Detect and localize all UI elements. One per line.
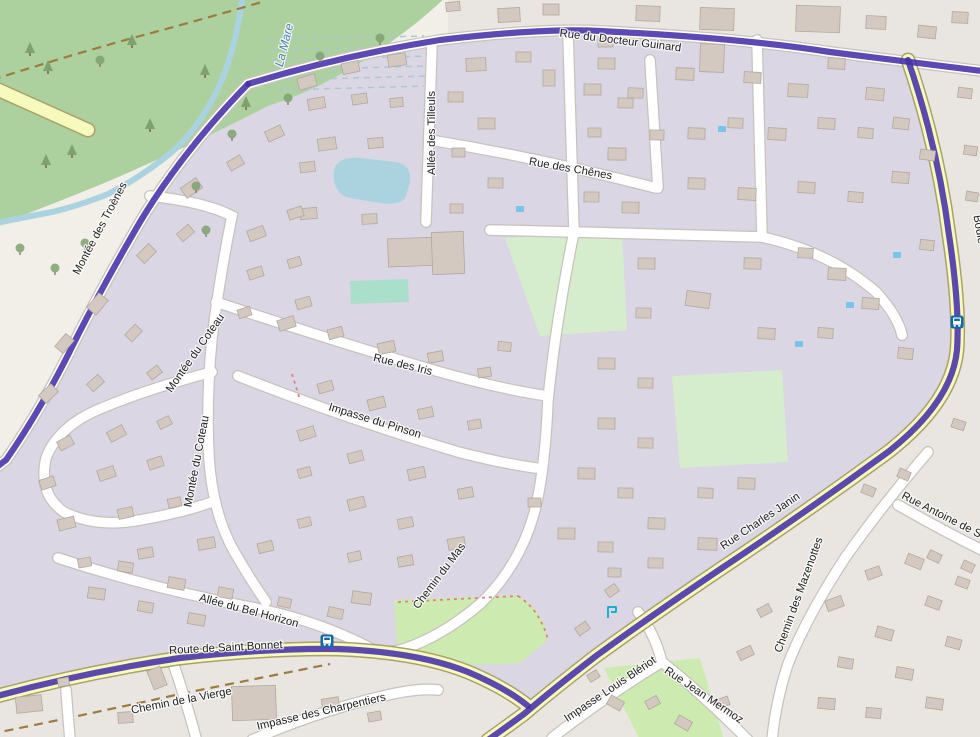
building [963,145,977,156]
building [446,1,461,11]
building [837,657,854,669]
building [862,297,880,309]
building [307,97,326,111]
building [367,711,381,722]
building [818,118,836,130]
building [608,148,626,160]
pool [893,252,901,258]
building [650,130,664,140]
building [648,518,665,530]
building [117,561,133,573]
building [920,239,935,250]
bus-stop-icon[interactable] [321,635,334,648]
street-label: Allée des Tilleuls [426,91,438,175]
building [57,677,69,687]
building [466,57,487,71]
building [478,118,495,129]
building [368,137,384,148]
building [952,12,969,24]
building [866,707,882,718]
building [543,70,555,86]
building [467,419,481,430]
building [197,537,216,551]
street-757 [757,40,762,237]
building [818,327,834,338]
building [895,667,914,681]
bus-stop-icon[interactable] [951,316,964,329]
building [397,555,414,567]
building [818,697,836,709]
building [362,214,378,225]
pool [846,302,854,308]
building [622,202,639,213]
building [457,487,474,499]
building [685,290,711,308]
building [598,542,613,552]
building [744,72,762,84]
building [317,137,336,151]
building [700,7,735,30]
stub-sw1 [66,690,70,737]
building [788,83,809,97]
building [688,128,705,140]
building [231,685,276,721]
building [427,351,444,363]
building [584,84,601,95]
building [351,591,371,606]
building [728,118,743,129]
building [588,128,601,137]
building [77,557,91,568]
building [897,347,913,360]
building [828,268,847,281]
building [636,6,661,22]
building [15,695,43,714]
building [543,4,559,15]
building [892,171,910,183]
map-canvas[interactable]: Rue du Docteur GuinardMontée des Troènes… [0,0,980,737]
building [351,93,367,105]
building [796,5,841,33]
building [758,328,776,340]
building [477,367,491,378]
building [638,378,653,388]
building [558,528,575,539]
building [137,601,154,613]
building [919,149,935,161]
building [688,178,705,190]
building [738,478,755,490]
building [598,418,615,429]
building [698,488,713,499]
building [584,192,599,202]
building [578,468,595,479]
building [866,87,885,101]
building [917,25,936,39]
building [892,117,909,130]
building [848,191,864,202]
building [798,248,814,259]
building [768,128,787,141]
building [452,148,465,157]
building [167,577,186,591]
pool [795,341,803,347]
building [676,68,694,81]
building [448,92,463,102]
building [965,191,978,202]
building [618,488,633,498]
building [528,498,541,507]
green-b-area [672,370,788,468]
building [608,568,621,577]
building [744,258,761,270]
building [390,97,404,107]
building [431,231,464,274]
building [700,44,725,73]
chenes-loop-w [568,34,574,232]
building [957,87,972,99]
building [618,98,633,108]
building [638,258,655,269]
building [450,204,463,213]
building [858,127,874,138]
building [488,178,503,188]
building [187,613,206,627]
pool [516,206,524,212]
building [638,438,653,448]
pool [718,126,726,132]
building [137,547,154,559]
building [698,538,717,551]
building [866,15,887,29]
building [925,697,943,710]
building [738,188,757,201]
building [628,88,643,99]
building [387,53,406,67]
building [636,308,651,318]
building [648,558,663,568]
building [498,341,512,351]
building [87,587,105,600]
building [828,58,846,70]
building [598,58,615,69]
building [300,161,316,173]
map-tile: Rue du Docteur GuinardMontée des Troènes… [0,0,980,737]
building [498,7,521,22]
building [798,182,816,194]
building [598,358,615,369]
building [516,52,531,62]
pitch-area [350,279,409,304]
